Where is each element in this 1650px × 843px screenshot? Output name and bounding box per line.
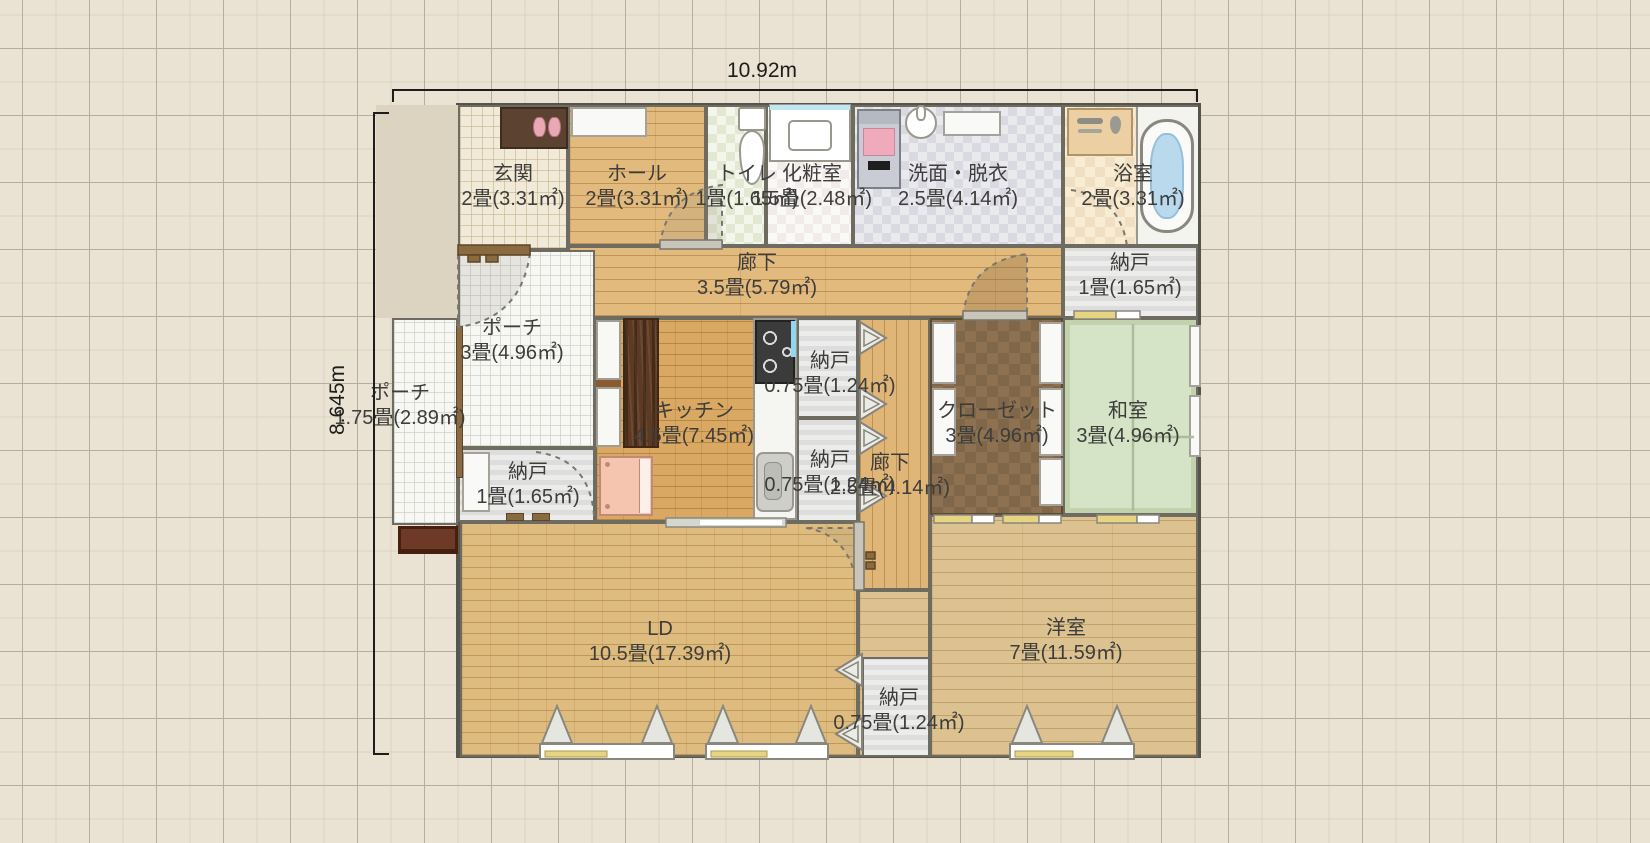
dimension-width-label: 10.92m (727, 59, 797, 83)
dimension-line-vertical (373, 112, 389, 755)
floorplan-canvas: 玄関2畳(3.31㎡)ホール2畳(3.31㎡)トイレ1畳(1.65㎡)化粧室1.… (0, 0, 1650, 843)
dimension-height-label: 8.645m (326, 365, 350, 435)
dimension-line-horizontal (392, 89, 1198, 102)
dimensions-layer: 10.92m 8.645m (0, 0, 1650, 843)
